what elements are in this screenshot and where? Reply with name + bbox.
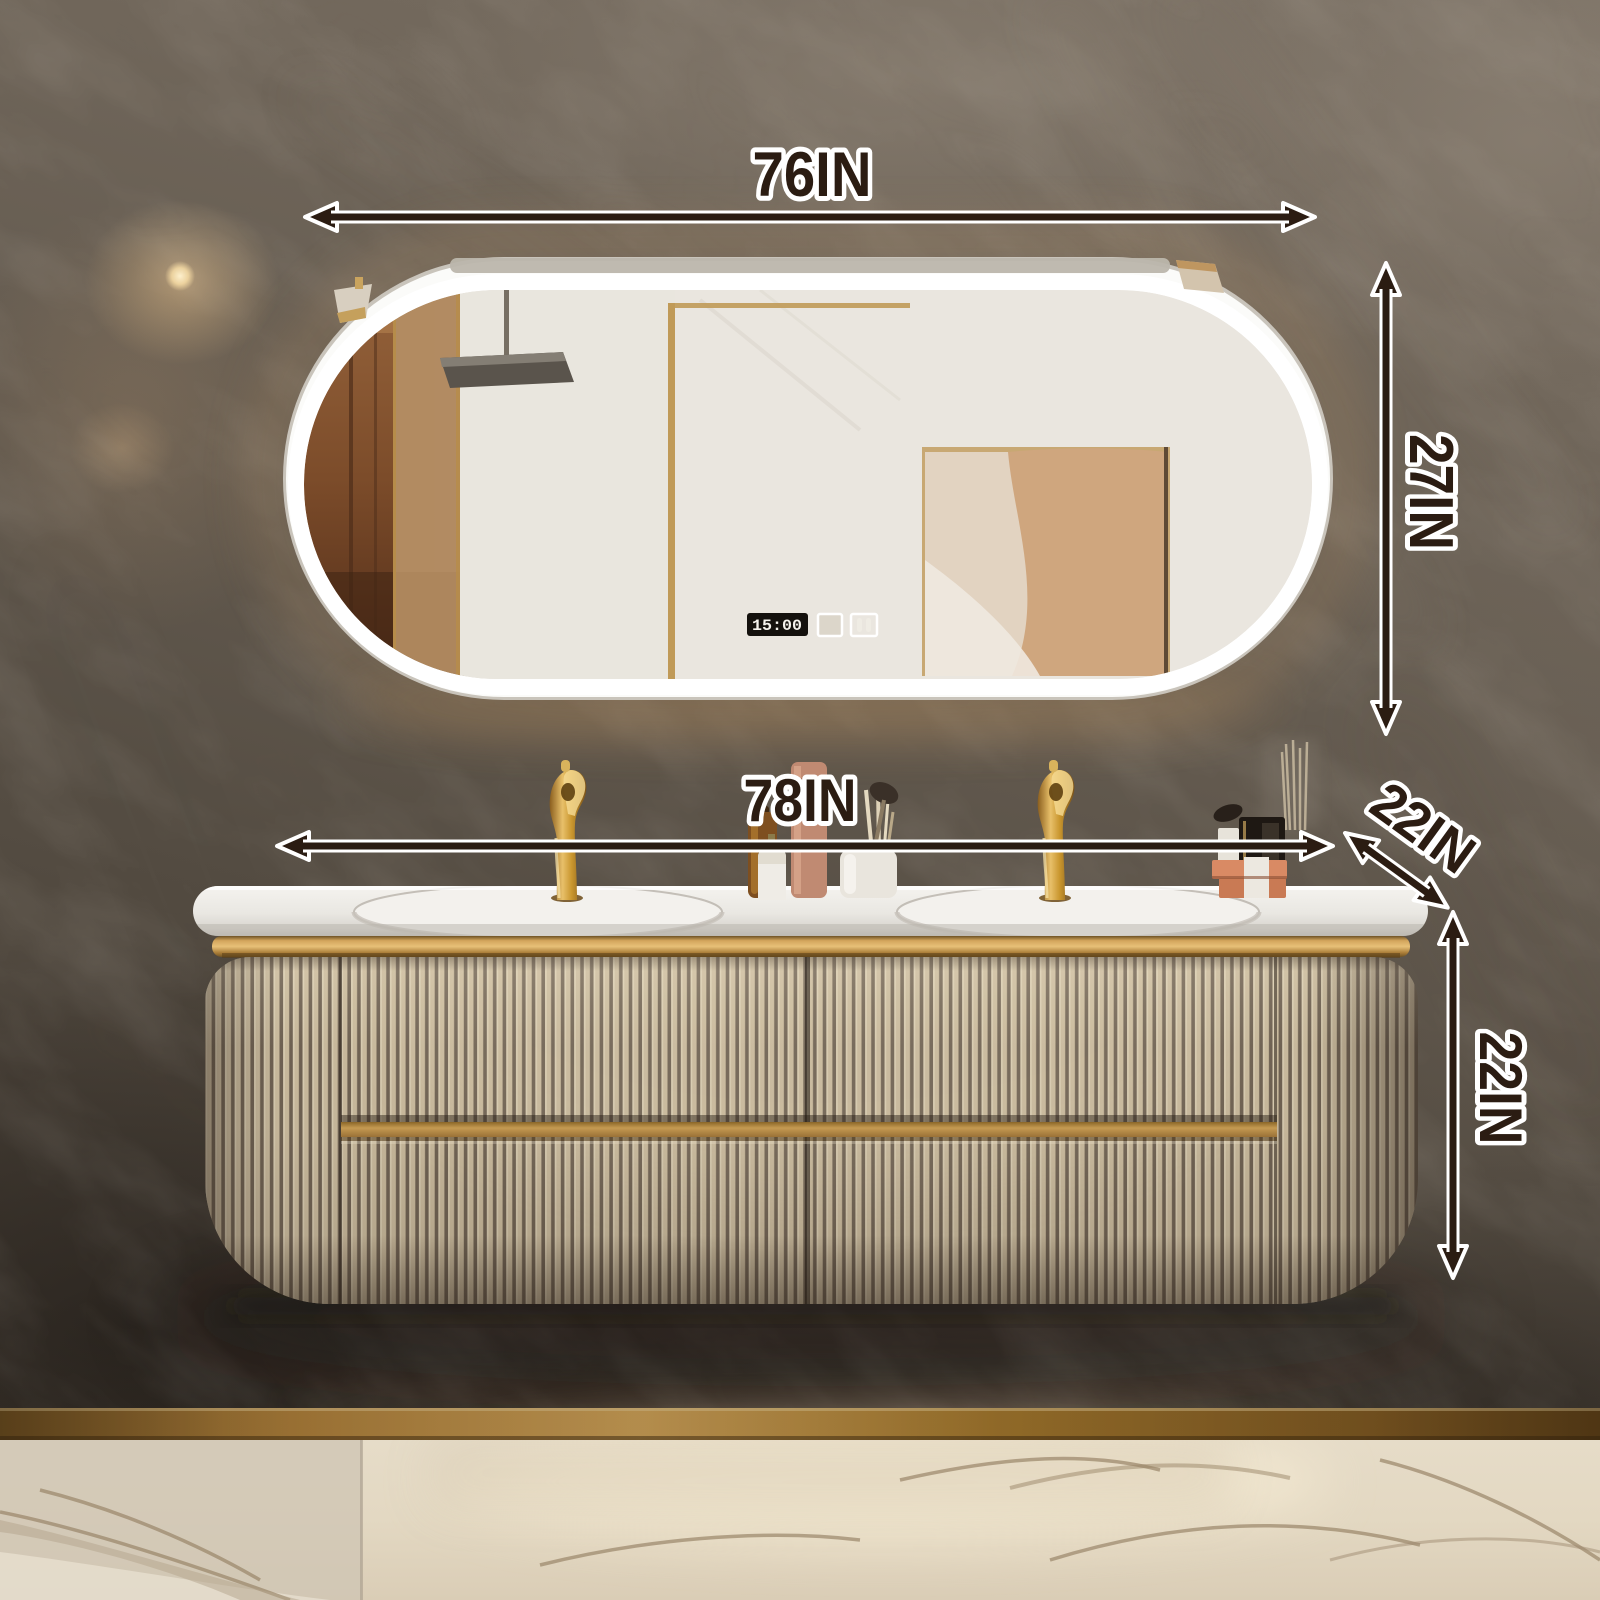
svg-text:22IN: 22IN [1467, 1032, 1534, 1145]
svg-text:15:00: 15:00 [752, 617, 802, 635]
svg-text:78IN: 78IN [744, 767, 857, 834]
svg-text:76IN: 76IN [753, 140, 872, 210]
svg-text:27IN: 27IN [1396, 434, 1465, 550]
